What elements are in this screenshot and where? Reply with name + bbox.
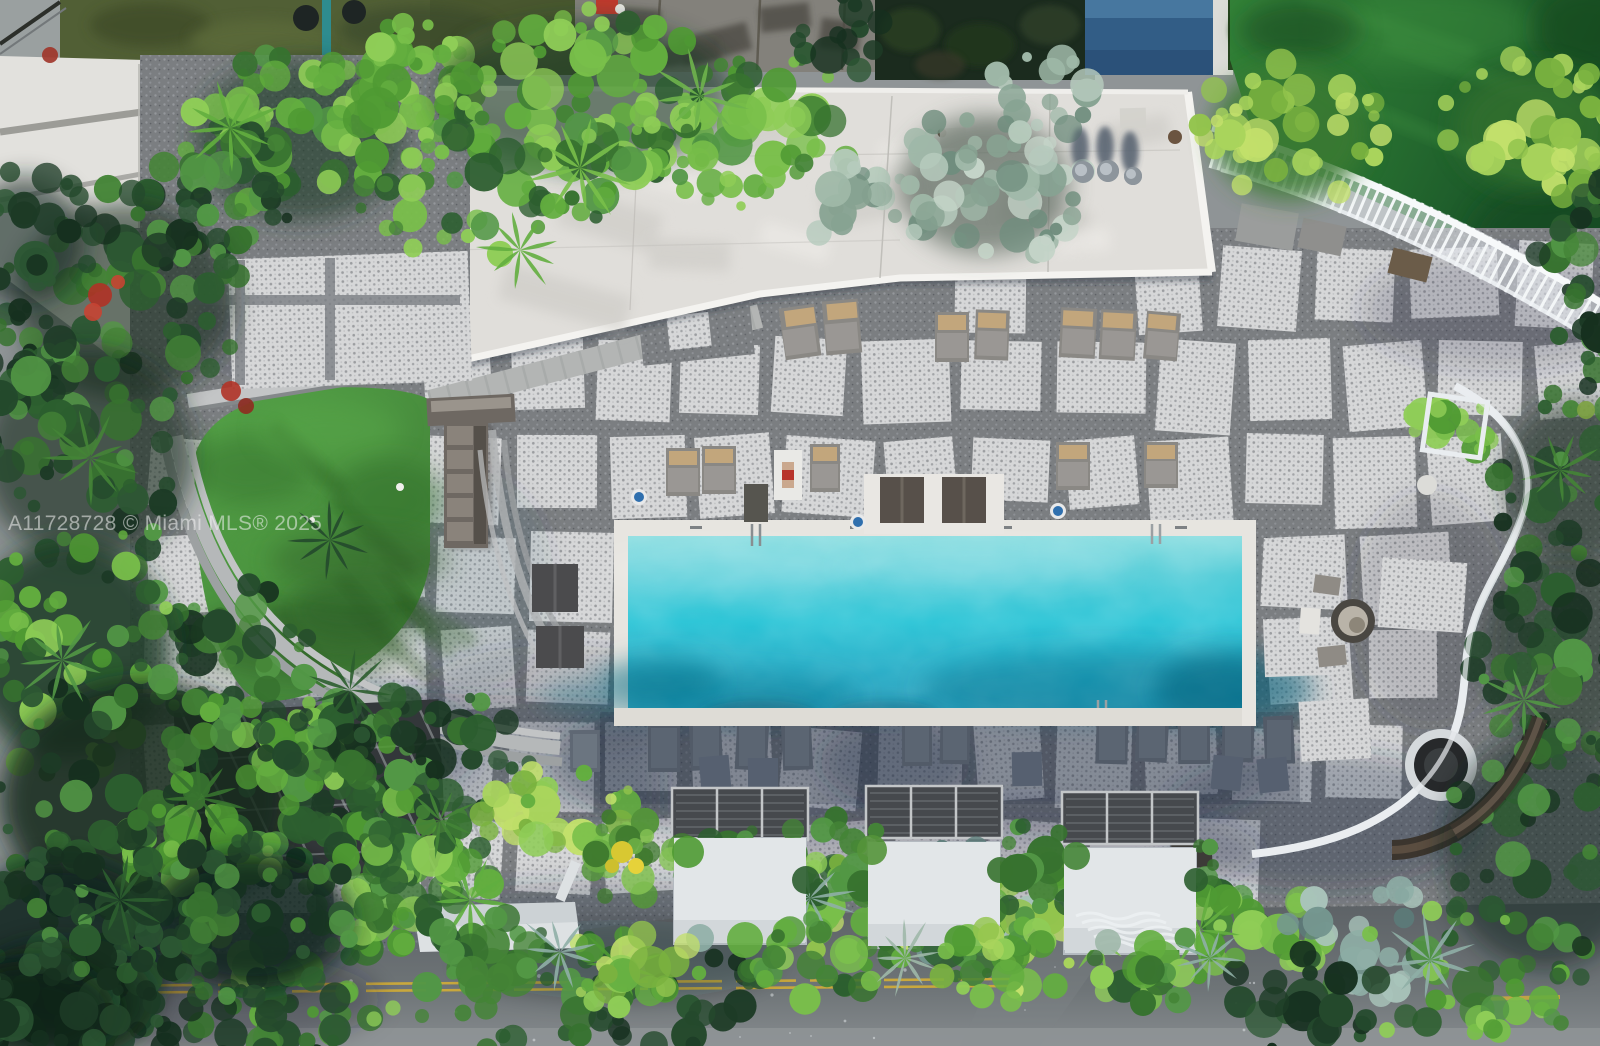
svg-text:A11728728 © Miami MLS® 2025: A11728728 © Miami MLS® 2025 [8, 512, 322, 535]
